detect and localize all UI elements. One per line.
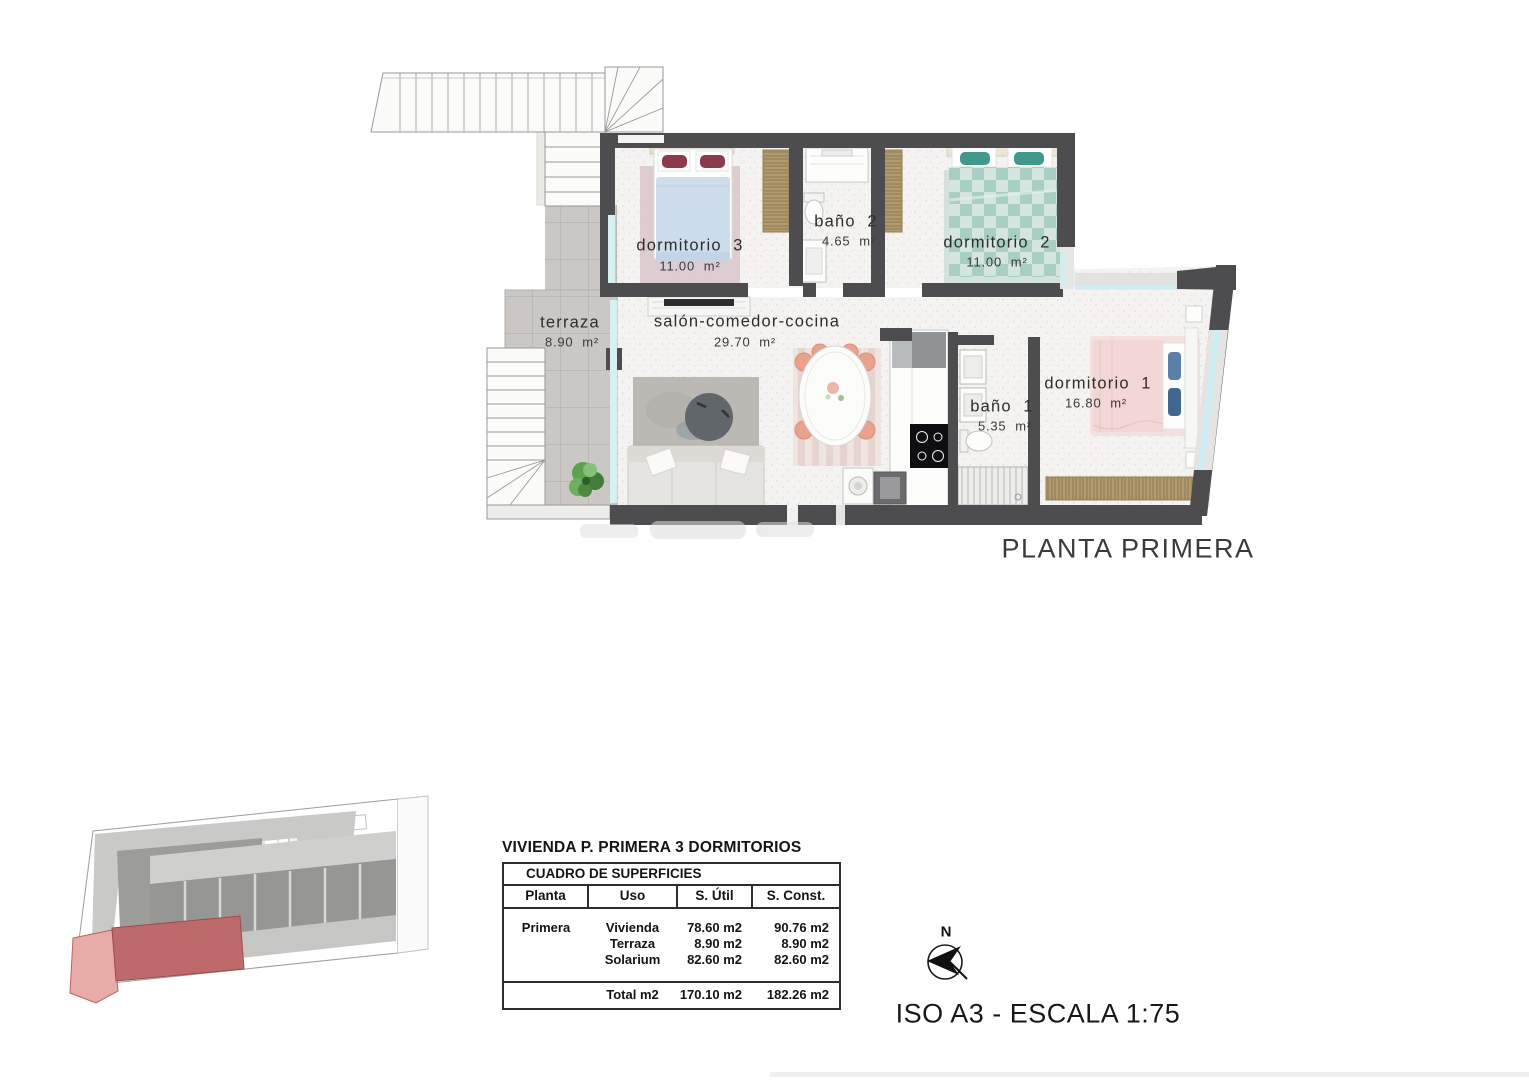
col-header-planta: Planta (503, 885, 588, 908)
cell-planta (503, 952, 588, 982)
sheet-edge (770, 1072, 1529, 1077)
cell-uso: Terraza (588, 936, 677, 952)
room-area-salon: 29.70 m² (714, 335, 776, 350)
total-s-util: 170.10 m2 (677, 982, 752, 1009)
room-label-salon: salón-comedor-cocina (654, 313, 840, 332)
cell-s-util: 82.60 m2 (677, 952, 752, 982)
total-s-const: 182.26 m2 (752, 982, 840, 1009)
col-header-s-util: S. Útil (677, 885, 752, 908)
cell-planta (503, 936, 588, 952)
wardrobe-3 (763, 150, 789, 232)
cell-s-const: 8.90 m2 (752, 936, 840, 952)
col-header-s-const: S. Const. (752, 885, 840, 908)
floor-plan-sheet: dormitorio 3 11.00 m² baño 2 4.65 m² dor… (0, 0, 1529, 1080)
dining-table (799, 346, 871, 446)
north-compass-icon (927, 945, 967, 979)
total-label: Total m2 (588, 982, 677, 1009)
table-row: Primera Vivienda 78.60 m2 90.76 m2 (503, 908, 840, 936)
plan-title: PLANTA PRIMERA (1001, 534, 1254, 565)
room-area-bano-1: 5.35 m² (978, 419, 1032, 434)
coffee-table (685, 393, 733, 441)
room-label-dormitorio-1: dormitorio 1 (1044, 375, 1151, 394)
room-label-dormitorio-2: dormitorio 2 (943, 234, 1050, 253)
site-plan (70, 796, 428, 1003)
highlighted-unit-terrace (70, 930, 118, 1003)
surfaces-table: CUADRO DE SUPERFICIES Planta Uso S. Útil… (502, 862, 841, 1010)
scale-note: ISO A3 - ESCALA 1:75 (896, 999, 1181, 1030)
cell-s-const: 82.60 m2 (752, 952, 840, 982)
room-label-bano-1: baño 1 (970, 398, 1033, 417)
cell-s-util: 78.60 m2 (677, 908, 752, 936)
table-row: Solarium 82.60 m2 82.60 m2 (503, 952, 840, 982)
cell-s-util: 8.90 m2 (677, 936, 752, 952)
wardrobe-1 (1046, 477, 1196, 500)
room-area-terraza: 8.90 m² (545, 335, 599, 350)
cell-uso: Solarium (588, 952, 677, 982)
room-label-bano-2: baño 2 (814, 213, 877, 232)
room-area-dormitorio-3: 11.00 m² (659, 259, 720, 274)
cell-s-const: 90.76 m2 (752, 908, 840, 936)
compass-n-label: N (941, 924, 952, 941)
room-area-dormitorio-1: 16.80 m² (1065, 396, 1127, 411)
table-band-header: CUADRO DE SUPERFICIES (503, 863, 840, 885)
cell-planta: Primera (503, 908, 588, 936)
room-area-dormitorio-2: 11.00 m² (966, 255, 1027, 270)
cooktop (910, 424, 950, 468)
table-row: Terraza 8.90 m2 8.90 m2 (503, 936, 840, 952)
surfaces-table-block: VIVIENDA P. PRIMERA 3 DORMITORIOS CUADRO… (502, 839, 843, 1010)
surfaces-table-title: VIVIENDA P. PRIMERA 3 DORMITORIOS (502, 839, 843, 857)
col-header-uso: Uso (588, 885, 677, 908)
highlighted-unit (112, 916, 244, 981)
room-label-dormitorio-3: dormitorio 3 (636, 237, 743, 256)
table-total-row: Total m2 170.10 m2 182.26 m2 (503, 982, 840, 1009)
room-label-terraza: terraza (540, 314, 600, 333)
cell-uso: Vivienda (588, 908, 677, 936)
room-area-bano-2: 4.65 m² (822, 234, 876, 249)
